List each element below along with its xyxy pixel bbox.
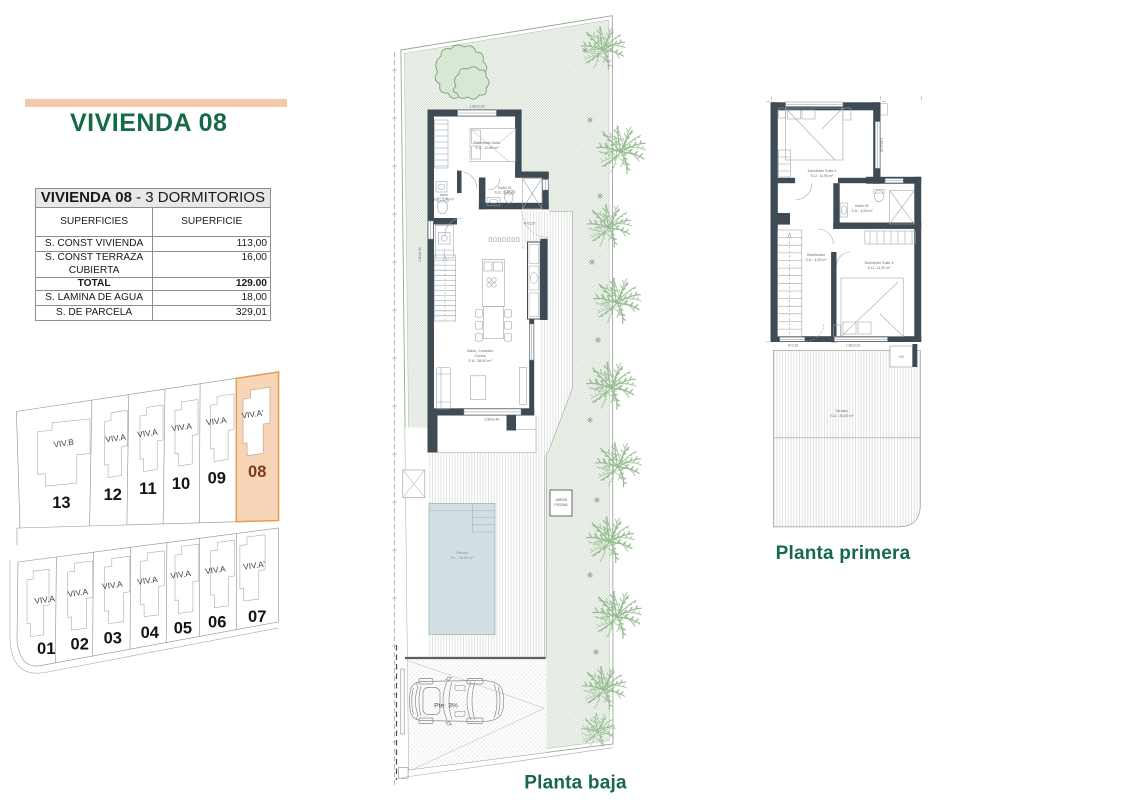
svg-text:06: 06 [208,613,226,631]
svg-text:2.80x2.40: 2.80x2.40 [485,418,500,422]
svg-text:09: 09 [208,470,226,488]
svg-text:Pte: 3%: Pte: 3% [434,703,458,710]
svg-text:S.U.: 4,00 m²: S.U.: 4,00 m² [851,209,873,213]
svg-text:Planta primera: Planta primera [776,543,911,564]
svg-text:Salón, Comedor: Salón, Comedor [467,349,494,353]
svg-text:S.U.: 11,20 m²: S.U.: 11,20 m² [868,266,892,270]
svg-text:PISCINA: PISCINA [554,503,568,507]
svg-text:Piscina: Piscina [456,551,468,555]
svg-text:1.80x2.20: 1.80x2.20 [470,105,485,109]
svg-text:S.U.: 10,60 m²: S.U.: 10,60 m² [475,146,499,150]
svg-text:S.U.: 38,00 m²: S.U.: 38,00 m² [468,359,492,363]
svg-text:04: 04 [141,624,160,642]
svg-text:Dormitorio Suite 3: Dormitorio Suite 3 [865,261,894,265]
svg-text:JARDIN: JARDIN [555,498,568,502]
svg-text:02: 02 [71,636,89,654]
svg-text:Distribuidor: Distribuidor [807,253,826,257]
svg-text:terraza: terraza [836,409,847,413]
svg-text:Dormitorio Suite: Dormitorio Suite [474,141,500,145]
svg-text:1.80x2.20: 1.80x2.20 [880,138,884,152]
svg-text:Baño 01: Baño 01 [498,186,511,190]
svg-text:Cocina: Cocina [474,354,485,358]
svg-text:S.U.: 3,40 m²: S.U.: 3,40 m² [494,191,516,195]
svg-text:H=2,20: H=2,20 [788,343,799,347]
svg-text:Dormitorio Suite 2: Dormitorio Suite 2 [808,169,837,173]
svg-text:11: 11 [139,480,156,498]
svg-text:H=2,20: H=2,20 [524,222,536,226]
svg-text:VIV.A: VIV.A [34,593,56,606]
svg-text:10: 10 [172,475,190,493]
svg-text:01: 01 [37,640,55,658]
svg-text:S.U.: 4,00 m²: S.U.: 4,00 m² [805,258,827,262]
svg-text:13: 13 [52,494,70,512]
svg-text:S.L.: 18,00 m²: S.L.: 18,00 m² [451,556,474,560]
svg-text:Aseo: Aseo [440,193,448,197]
svg-text:Planta baja: Planta baja [524,773,627,794]
svg-text:1.80x2.20: 1.80x2.20 [846,343,860,347]
svg-text:05: 05 [174,619,192,637]
svg-text:Baño 02: Baño 02 [855,204,868,208]
svg-text:07: 07 [248,608,266,626]
svg-text:+03: +03 [898,355,904,359]
svg-text:03: 03 [104,630,122,648]
svg-text:S.U.: 11,90 m²: S.U.: 11,90 m² [811,174,835,178]
svg-text:08: 08 [248,463,266,481]
svg-text:S.U.: 30,00 m²: S.U.: 30,00 m² [830,414,854,418]
svg-text:S.U.: 1,40 m²: S.U.: 1,40 m² [433,198,455,202]
svg-text:2.80x2.40: 2.80x2.40 [418,247,422,262]
svg-text:12: 12 [104,486,122,504]
